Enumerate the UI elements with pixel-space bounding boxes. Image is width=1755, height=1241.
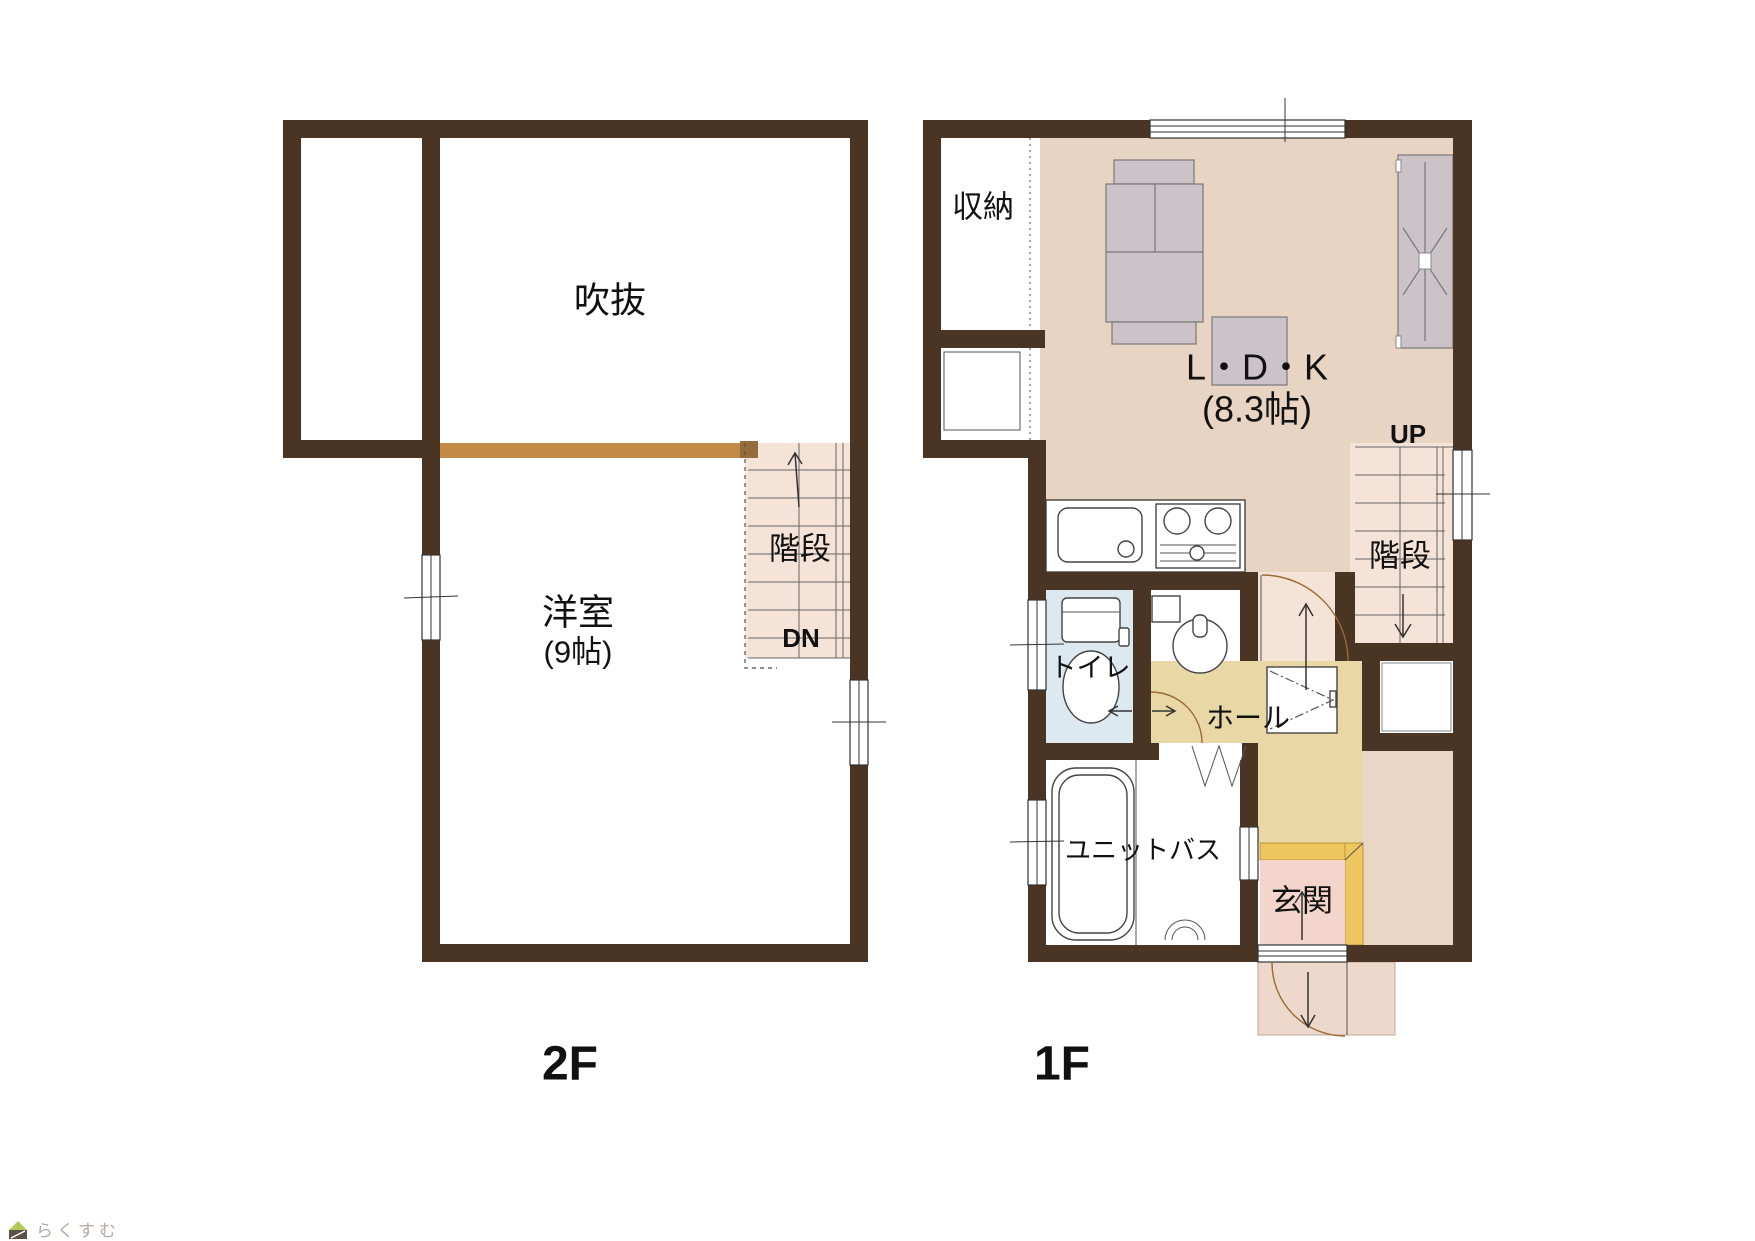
storage-lower-counter bbox=[944, 352, 1020, 430]
sink-drain bbox=[1118, 541, 1134, 557]
window-2f-right bbox=[832, 680, 886, 765]
ldk-size-label: (8.3帖) bbox=[1202, 389, 1312, 430]
porch-floor bbox=[1258, 962, 1395, 1035]
stove bbox=[1156, 504, 1240, 568]
bath-folding-door bbox=[1192, 746, 1246, 786]
sofa bbox=[1106, 160, 1203, 344]
stairs-1f-direction: UP bbox=[1390, 419, 1426, 449]
entrance-label: 玄関 bbox=[1271, 884, 1333, 919]
entrance-step-right bbox=[1345, 843, 1363, 945]
understair-storage bbox=[1382, 663, 1451, 731]
western-room-size: (9帖) bbox=[544, 635, 613, 670]
western-room-label: 洋室 bbox=[542, 592, 614, 633]
floor-2f-caption: 2F bbox=[542, 1038, 598, 1091]
stairs-2f-label: 階段 bbox=[769, 532, 831, 567]
bath-label: ユニットバス bbox=[1065, 835, 1221, 865]
hall-floor-mid bbox=[1258, 743, 1345, 843]
entrance-door-threshold bbox=[1258, 945, 1347, 962]
logo-text: らくすむ bbox=[36, 1222, 120, 1241]
floorplan-page: 吹抜 階段 DN 洋室 (9帖) 2F bbox=[0, 0, 1755, 1241]
ldk-passage-floor bbox=[1258, 572, 1335, 661]
kitchen-counter bbox=[1046, 500, 1245, 572]
plan-1f: 収納 L・D・K (8.3帖) UP 階段 トイレ ホール ユニットバス 玄関 … bbox=[923, 98, 1490, 1091]
floor-1f-caption: 1F bbox=[1034, 1038, 1090, 1091]
stairs-1f-label: 階段 bbox=[1369, 539, 1431, 574]
closet-rack bbox=[1396, 155, 1453, 348]
house-icon bbox=[9, 1221, 27, 1239]
hall-label: ホール bbox=[1206, 703, 1290, 734]
floorplan-drawing: 吹抜 階段 DN 洋室 (9帖) 2F bbox=[0, 0, 1755, 1241]
bath-side-door bbox=[1240, 827, 1258, 880]
void-label: 吹抜 bbox=[574, 280, 646, 321]
window-2f-left bbox=[404, 555, 458, 640]
void-handrail bbox=[440, 443, 740, 458]
stairs-2f-direction: DN bbox=[782, 623, 820, 653]
rakusumu-logo: らくすむ bbox=[9, 1221, 120, 1241]
hall-floor-right bbox=[1362, 751, 1453, 945]
toilet-label: トイレ bbox=[1050, 653, 1131, 683]
storage-label: 収納 bbox=[952, 190, 1014, 225]
plan-2f: 吹抜 階段 DN 洋室 (9帖) 2F bbox=[283, 120, 886, 1091]
void-handrail-post bbox=[740, 441, 758, 458]
window-1f-top bbox=[1150, 98, 1345, 142]
ldk-label: L・D・K bbox=[1186, 347, 1328, 388]
